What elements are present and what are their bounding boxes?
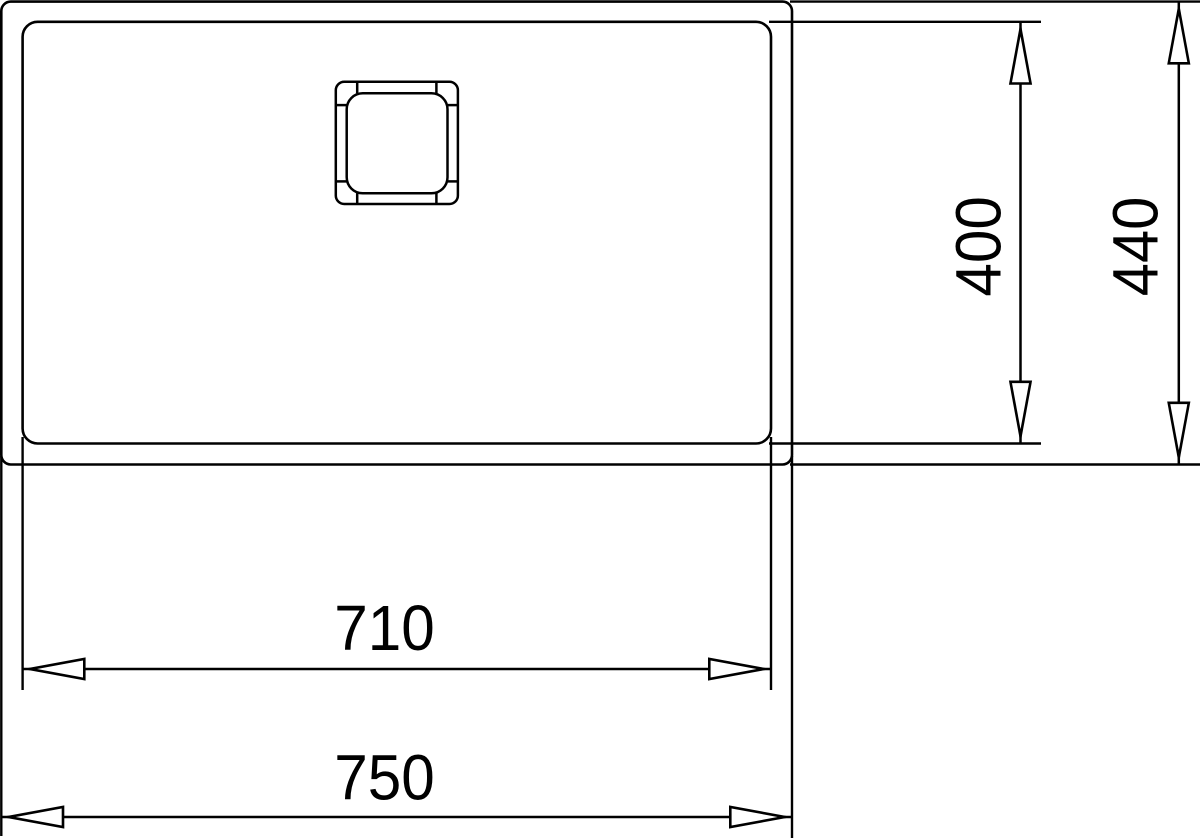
svg-text:440: 440 (1100, 197, 1172, 297)
svg-text:710: 710 (334, 592, 435, 664)
svg-text:400: 400 (943, 196, 1015, 297)
svg-text:750: 750 (334, 741, 435, 813)
